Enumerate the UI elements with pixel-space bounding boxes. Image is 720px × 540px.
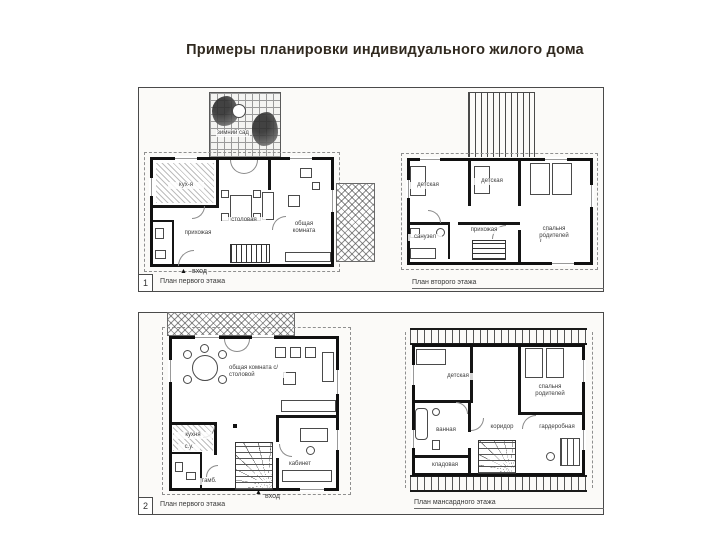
terrace-hatch	[336, 183, 375, 262]
room-label-wc3: с.у.	[178, 444, 200, 451]
window	[589, 185, 594, 207]
roof-edge-strip	[410, 328, 587, 345]
room-label-kitchen: кух-я	[168, 182, 204, 189]
interior-wall	[415, 455, 470, 458]
roof-edge-strip	[410, 475, 587, 492]
interior-wall	[276, 415, 339, 418]
room-label-kids4: детская	[440, 373, 476, 380]
bathtub	[410, 248, 436, 259]
bed	[525, 348, 543, 378]
chair	[546, 452, 555, 461]
bed	[410, 166, 426, 196]
window	[195, 335, 219, 340]
armchair	[312, 182, 320, 190]
room-label-dining: столовая	[222, 217, 266, 224]
cabinet	[322, 352, 334, 382]
shelf-unit	[262, 192, 274, 220]
window	[552, 261, 574, 266]
interior-wall	[216, 160, 219, 208]
room-label-parents: спальня родителей	[534, 226, 574, 239]
stairs	[472, 240, 506, 260]
window	[290, 156, 312, 161]
interior-wall	[518, 347, 521, 415]
plant-shape	[252, 112, 278, 146]
plan4-roof-outline	[405, 332, 406, 488]
interior-wall	[468, 448, 471, 474]
toilet	[155, 228, 164, 239]
room-label-kids2: детская	[474, 178, 510, 185]
room-label-hall2: прихожая	[462, 227, 506, 234]
plan-number-badge: 2	[138, 497, 153, 515]
window	[581, 360, 586, 382]
room-label-parents4: спальня родителей	[528, 384, 572, 397]
room-label-wardrobe: гардеробная	[532, 424, 582, 431]
bed	[416, 349, 446, 365]
sofa	[285, 252, 331, 262]
slide-title: Примеры планировки индивидуального жилог…	[150, 42, 620, 58]
bathtub	[415, 408, 428, 440]
room-label-living-dining: общая комната с/ столовой	[228, 365, 286, 378]
interior-wall	[468, 161, 471, 206]
armchair	[305, 347, 316, 358]
room-label-living: общая комната	[282, 221, 326, 234]
chair	[183, 350, 192, 359]
chair	[200, 344, 209, 353]
round-dining-table	[192, 355, 218, 381]
plan2-caption: План второго этажа	[412, 279, 604, 289]
window	[420, 157, 440, 162]
chair	[306, 446, 315, 455]
wardrobe-unit	[560, 438, 580, 466]
tv-cabinet	[300, 168, 312, 178]
room-label-kitchen3: кухня	[174, 432, 212, 439]
counter	[281, 400, 336, 412]
window	[149, 178, 154, 196]
chair	[253, 190, 261, 198]
chair	[218, 375, 227, 384]
desk	[300, 428, 328, 442]
interior-wall	[518, 161, 521, 206]
plan4-caption: План мансардного этажа	[414, 499, 604, 509]
chair	[218, 350, 227, 359]
garden-table	[232, 104, 246, 118]
window	[581, 430, 586, 450]
sofa	[282, 470, 332, 482]
toilet	[432, 440, 440, 450]
interior-wall	[172, 452, 202, 454]
window	[545, 157, 567, 162]
chair	[221, 190, 229, 198]
slide: Примеры планировки индивидуального жилог…	[0, 0, 720, 540]
plan3-caption: План первого этажа	[160, 501, 225, 508]
room-label-winter-garden: зимний сад	[216, 130, 250, 137]
sink	[186, 472, 196, 480]
sink	[432, 408, 440, 416]
room-label-kids1: детская	[410, 182, 446, 189]
window	[175, 156, 197, 161]
plan-number-badge: 1	[138, 274, 153, 292]
interior-wall	[458, 222, 520, 225]
armchair	[290, 347, 301, 358]
entrance-label: вход	[192, 268, 207, 275]
entrance-arrow-icon: ▲	[255, 489, 262, 496]
column	[233, 424, 237, 428]
stairs	[478, 440, 516, 474]
stairs	[230, 244, 270, 263]
room-label-bath4: ванная	[430, 427, 462, 434]
entrance-label3: вход	[265, 493, 280, 500]
room-label-storage: кладовая	[424, 462, 466, 469]
window	[300, 487, 324, 492]
window	[330, 190, 335, 212]
window	[411, 365, 416, 385]
plan4-roof-outline	[592, 332, 593, 488]
interior-wall	[276, 458, 279, 491]
interior-wall	[268, 160, 271, 190]
interior-wall	[276, 418, 279, 442]
plan1-caption: План первого этажа	[160, 278, 225, 285]
interior-wall	[521, 412, 583, 415]
interior-wall	[448, 225, 450, 259]
room-label-study: кабинет	[280, 461, 320, 468]
window	[335, 430, 340, 450]
entrance-arrow-icon: ▲	[180, 268, 187, 275]
interior-wall	[153, 205, 219, 208]
toilet	[175, 462, 183, 472]
interior-wall	[415, 400, 473, 403]
interior-wall	[518, 230, 521, 262]
chair	[183, 375, 192, 384]
bed	[546, 348, 564, 378]
roof-stripes	[468, 92, 535, 157]
interior-wall	[172, 222, 174, 264]
room-label-vestibule: тамб.	[196, 478, 222, 485]
interior-wall	[153, 220, 174, 222]
window	[335, 370, 340, 394]
armchair	[275, 347, 286, 358]
stairs	[235, 442, 273, 490]
window	[252, 335, 274, 340]
bed	[552, 163, 572, 195]
room-label-bath2: санузел	[408, 234, 442, 241]
bed	[530, 163, 550, 195]
window	[168, 360, 173, 382]
room-label-hall: прихожая	[176, 230, 220, 237]
coffee-table	[288, 195, 300, 207]
sink	[155, 250, 166, 259]
room-label-corridor: коридор	[484, 424, 520, 431]
